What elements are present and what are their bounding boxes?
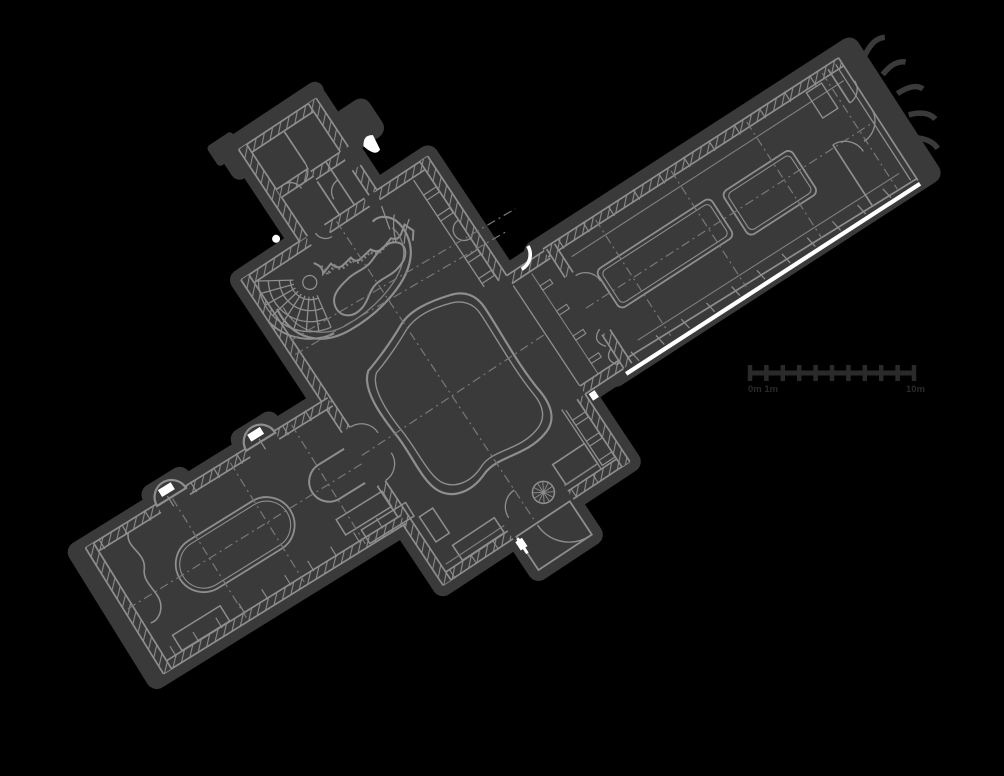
svg-text:10m: 10m (906, 384, 925, 395)
svg-text:0m 1m: 0m 1m (748, 384, 778, 395)
